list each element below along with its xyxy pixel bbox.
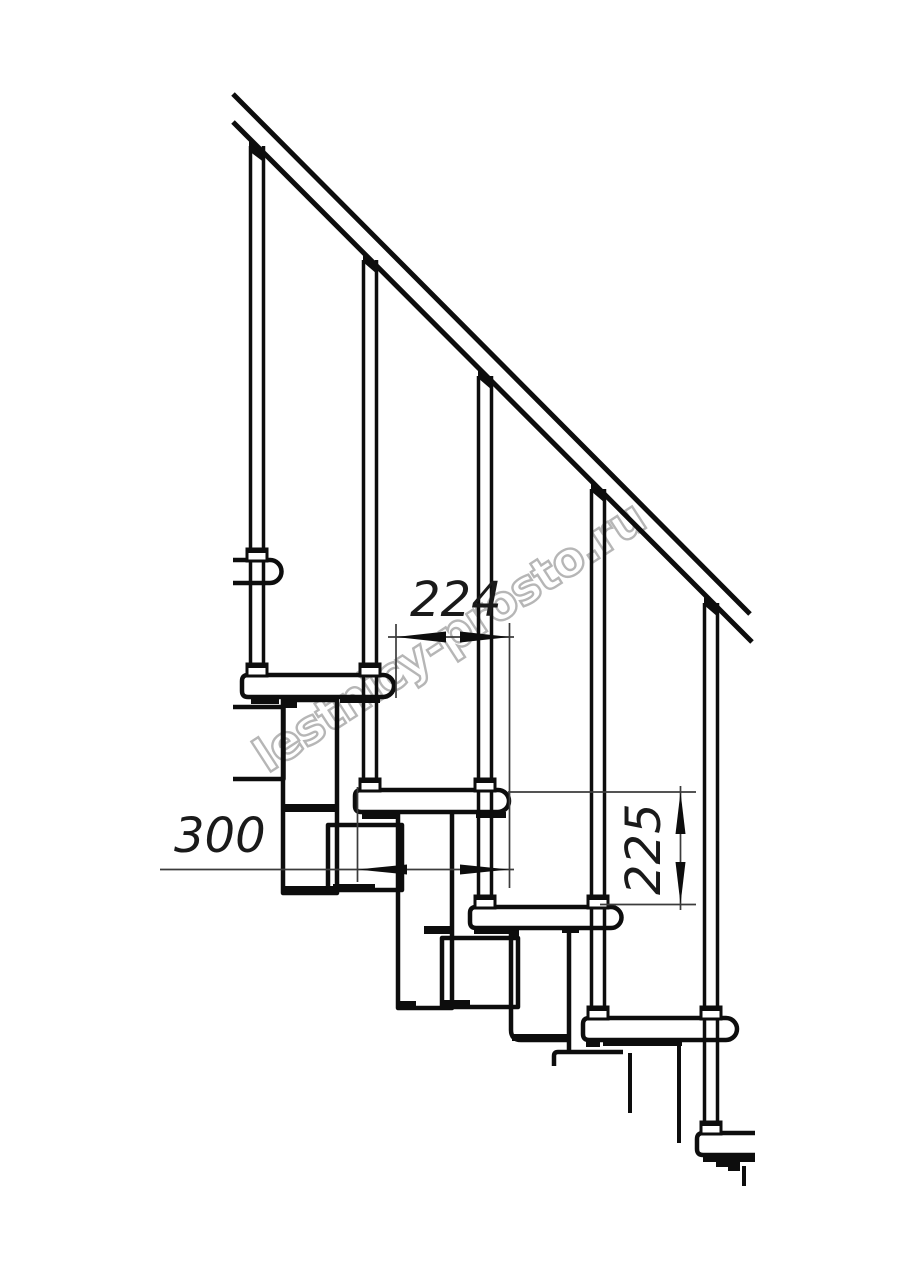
baluster-1 <box>246 138 268 676</box>
arrowhead-right-icon <box>460 865 510 875</box>
baluster-collar <box>246 549 268 561</box>
saddle-bottom-band <box>333 884 375 891</box>
dimension-rise: 225 <box>508 786 696 910</box>
dimension-depth-label: 300 <box>174 808 266 864</box>
support-modules <box>233 700 744 1186</box>
baluster-collar <box>474 779 496 791</box>
column-bottom-bracket <box>398 1001 416 1009</box>
arrowhead-up-icon <box>676 792 686 834</box>
saddle-bottom-band <box>443 1000 470 1007</box>
baluster-collar <box>587 896 609 908</box>
baluster-base <box>359 779 381 791</box>
baluster-base <box>246 664 268 676</box>
tread-mount <box>562 927 579 933</box>
tread-mount <box>586 1040 600 1047</box>
tread-mount <box>474 927 512 934</box>
arrowhead-down-icon <box>676 862 686 904</box>
staircase-technical-drawing: lestnicy-prosto.ru <box>0 0 914 1280</box>
saddle-under-tread-5-cut <box>554 1052 623 1066</box>
baluster-collar <box>700 1007 722 1019</box>
tread-6-cut <box>697 1133 755 1155</box>
dimension-run-label: 224 <box>410 572 502 628</box>
baluster-base <box>700 1122 722 1134</box>
tread-mount <box>340 697 380 703</box>
column-joint-band <box>283 804 337 812</box>
baluster-5 <box>700 595 722 1134</box>
column-joint-band <box>424 926 452 934</box>
arrowhead-left-icon <box>358 865 408 875</box>
baluster-collar <box>359 664 381 676</box>
tread-3 <box>355 790 509 812</box>
column-bracket <box>283 700 297 708</box>
tread-mount <box>703 1155 755 1162</box>
tread-mount <box>251 697 279 704</box>
tread-1-cut <box>233 560 282 583</box>
tread-5 <box>583 1018 737 1040</box>
tread-mount <box>603 1040 682 1046</box>
tread-mount <box>362 812 398 819</box>
tread-mount <box>728 1166 740 1171</box>
dimension-rise-label: 225 <box>616 803 672 895</box>
baluster-base <box>587 1007 609 1019</box>
baluster-base <box>474 896 496 908</box>
column-bottom-band <box>512 1034 569 1041</box>
tread-4 <box>470 907 622 928</box>
staircase-drawing-page: lestnicy-prosto.ru <box>0 0 914 1280</box>
treads <box>233 560 755 1155</box>
